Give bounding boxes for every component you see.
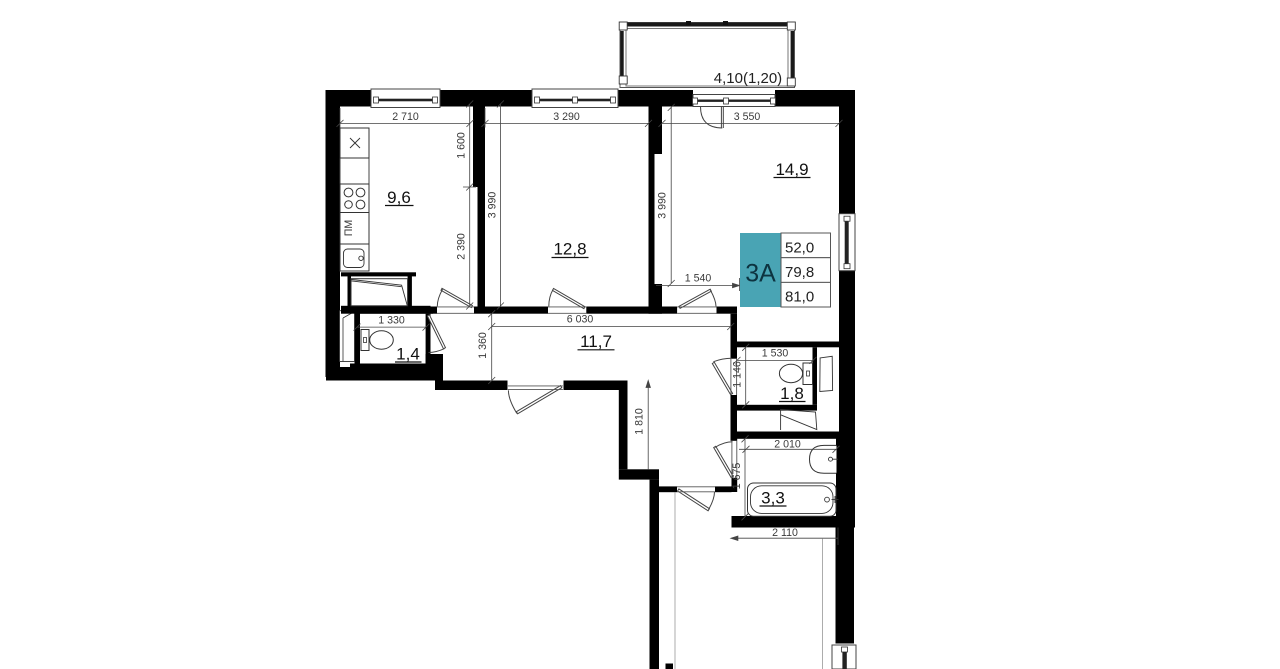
svg-text:3А: 3А: [745, 260, 776, 288]
svg-text:2 110: 2 110: [772, 527, 798, 539]
svg-text:1 330: 1 330: [378, 314, 405, 326]
svg-text:12,8: 12,8: [553, 240, 586, 259]
svg-text:1 810: 1 810: [634, 408, 646, 435]
svg-text:52,0: 52,0: [785, 239, 814, 256]
svg-text:3 290: 3 290: [553, 111, 580, 123]
svg-text:9,6: 9,6: [387, 188, 411, 207]
svg-text:81,0: 81,0: [785, 289, 814, 306]
svg-text:2 390: 2 390: [456, 233, 468, 260]
svg-text:1 540: 1 540: [685, 272, 712, 284]
svg-text:1 600: 1 600: [456, 132, 468, 159]
svg-text:11,7: 11,7: [580, 332, 612, 351]
svg-text:14,9: 14,9: [775, 160, 808, 179]
svg-text:3 990: 3 990: [657, 192, 669, 219]
svg-text:2 710: 2 710: [392, 111, 419, 123]
svg-text:2 010: 2 010: [774, 438, 801, 450]
svg-text:6 030: 6 030: [567, 314, 594, 326]
svg-text:1 360: 1 360: [477, 332, 489, 359]
svg-text:4,10(1,20): 4,10(1,20): [714, 70, 782, 87]
svg-text:1,8: 1,8: [780, 384, 804, 403]
svg-text:1,4: 1,4: [396, 345, 420, 364]
svg-text:1 675: 1 675: [731, 463, 743, 490]
svg-text:3 550: 3 550: [734, 111, 761, 123]
svg-text:3,3: 3,3: [761, 489, 785, 508]
svg-text:1 530: 1 530: [762, 348, 789, 360]
svg-text:ПМ: ПМ: [343, 220, 355, 236]
svg-text:3 990: 3 990: [486, 192, 498, 219]
svg-text:1 146: 1 146: [732, 361, 744, 388]
svg-text:79,8: 79,8: [785, 264, 814, 281]
